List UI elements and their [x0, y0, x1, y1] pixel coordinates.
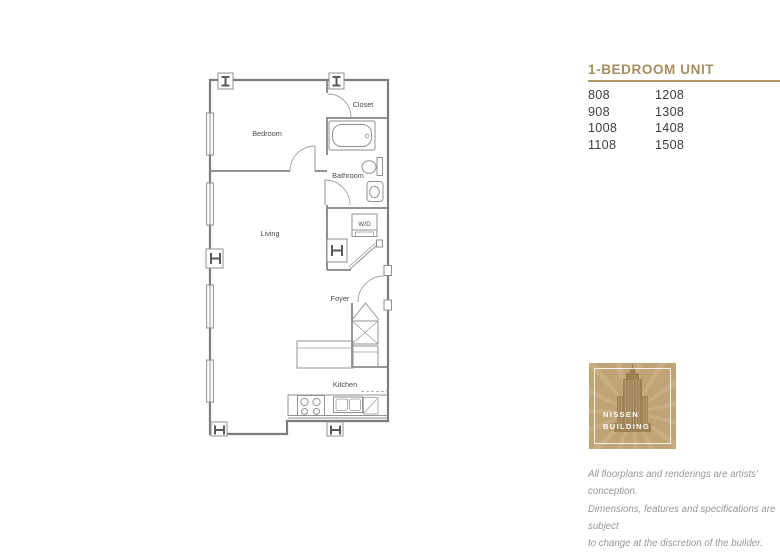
unit-number: 808 [588, 87, 655, 104]
column-symbol [206, 249, 223, 268]
foyer-door [358, 266, 392, 311]
window [207, 113, 214, 155]
disclaimer-line: Dimensions, features and specifications … [588, 501, 780, 536]
room-label-foyer: Foyer [331, 294, 350, 303]
window [207, 183, 214, 225]
unit-number: 1408 [655, 120, 722, 137]
window [207, 360, 214, 402]
bedroom-door [290, 146, 315, 171]
disclaimer-line: to change at the discretion of the build… [588, 535, 780, 552]
unit-row: 11081508 [588, 137, 728, 154]
unit-number: 1008 [588, 120, 655, 137]
column-symbol [327, 239, 347, 262]
unit-number-list: 8081208 9081308 10081408 11081508 [588, 87, 728, 153]
folding-door [352, 303, 379, 320]
refrigerator [352, 346, 378, 367]
unit-number: 1108 [588, 137, 655, 154]
unit-row: 8081208 [588, 87, 728, 104]
page-title: 1-BEDROOM UNIT [588, 62, 780, 77]
entry-door [349, 240, 383, 269]
kitchen-sink [334, 397, 363, 413]
room-label-bathroom: Bathroom [332, 171, 364, 180]
stove [298, 396, 325, 416]
column-symbol [218, 73, 233, 89]
column-symbol [329, 73, 344, 89]
unit-number: 1208 [655, 87, 722, 104]
kitchen-peninsula-counter [297, 341, 353, 368]
unit-number: 1508 [655, 137, 722, 154]
bathtub [329, 121, 375, 150]
room-label-living: Living [260, 229, 279, 238]
title-divider [588, 80, 780, 82]
logo-wordmark: NISSEN BUILDING [603, 409, 650, 433]
room-label-bedroom: Bedroom [252, 129, 282, 138]
room-label-closet: Closet [353, 100, 374, 109]
room-label-kitchen: Kitchen [333, 380, 357, 389]
bathroom-door [325, 180, 350, 205]
room-label-wd: W/D [358, 221, 371, 228]
disclaimer-line: All floorplans and renderings are artist… [588, 466, 780, 501]
unit-number: 1308 [655, 104, 722, 121]
logo-name-line1: NISSEN [603, 409, 650, 421]
column-symbol [211, 422, 227, 436]
closet-door [328, 94, 351, 117]
logo-name-line2: BUILDING [603, 421, 650, 433]
unit-row: 10081408 [588, 120, 728, 137]
window [207, 285, 214, 328]
unit-row: 9081308 [588, 104, 728, 121]
exterior-walls [210, 80, 388, 434]
unit-number: 908 [588, 104, 655, 121]
shaft-box [352, 321, 378, 344]
disclaimer-text: All floorplans and renderings are artist… [588, 466, 780, 552]
nissen-building-logo: NISSEN BUILDING [589, 363, 676, 449]
page: Bedroom Closet Bathroom Living W/D Foyer… [0, 0, 780, 517]
bathroom-sink [362, 158, 383, 176]
dishwasher [364, 398, 379, 415]
floorplan-drawing: Bedroom Closet Bathroom Living W/D Foyer… [183, 53, 418, 465]
column-symbol [327, 422, 343, 436]
toilet [367, 182, 383, 202]
